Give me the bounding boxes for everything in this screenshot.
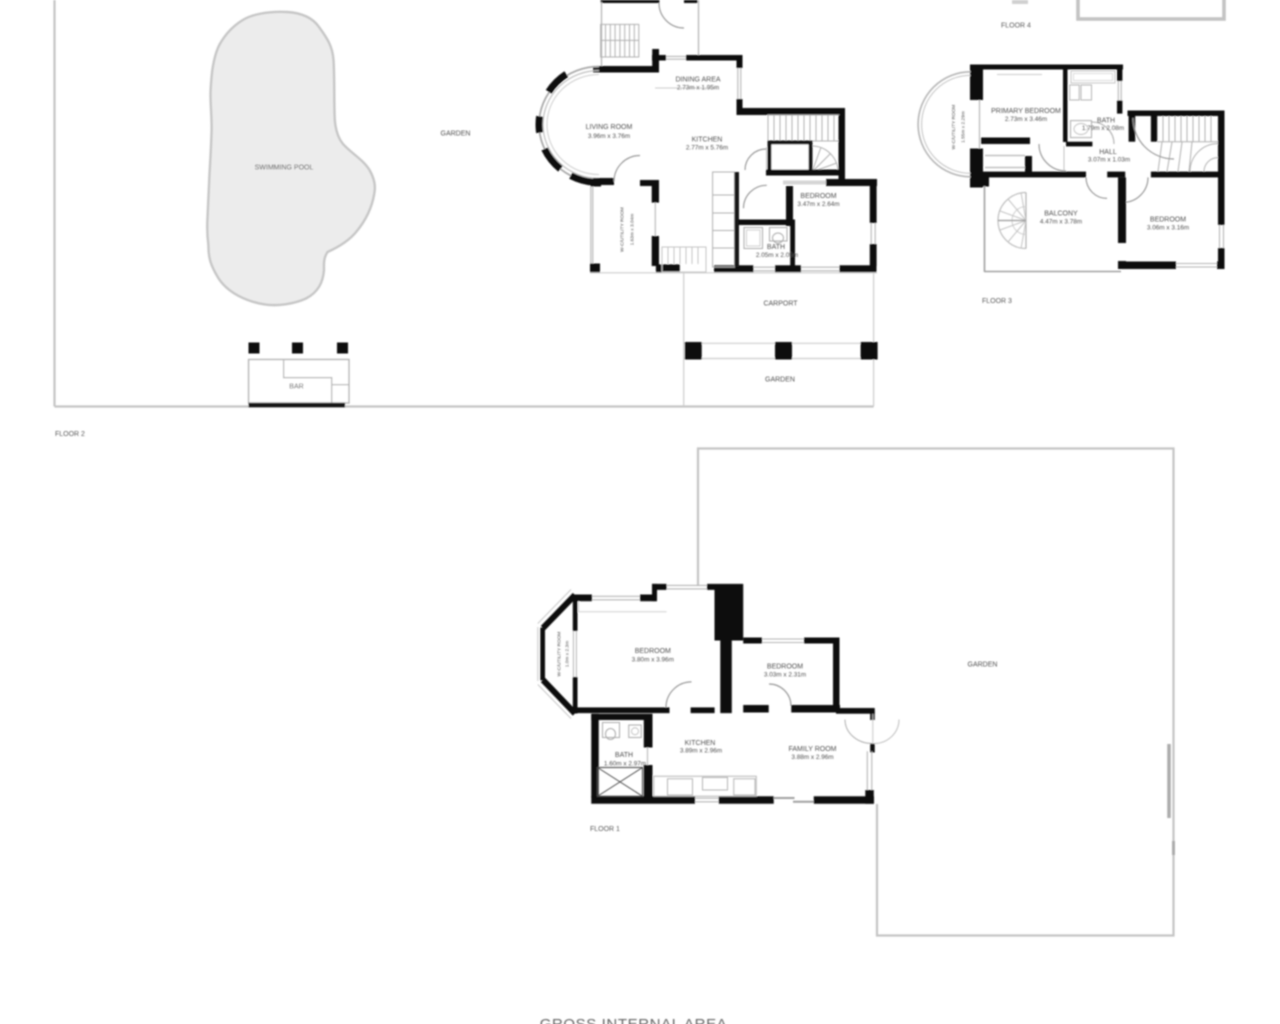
svg-text:W-C/UTILITY ROOM: W-C/UTILITY ROOM — [557, 632, 563, 677]
svg-text:FAMILY ROOM: FAMILY ROOM — [789, 746, 837, 753]
svg-text:SWIMMING POOL: SWIMMING POOL — [255, 165, 314, 172]
svg-text:1.55m x 2.29m: 1.55m x 2.29m — [961, 111, 967, 143]
svg-text:BATH: BATH — [767, 244, 785, 251]
svg-text:BATH: BATH — [615, 752, 633, 759]
svg-text:3.06m x 3.16m: 3.06m x 3.16m — [1147, 225, 1189, 232]
svg-text:FLOOR 1: FLOOR 1 — [590, 826, 620, 833]
svg-text:BEDROOM: BEDROOM — [800, 193, 836, 200]
svg-text:FLOOR 4: FLOOR 4 — [1001, 23, 1031, 30]
svg-text:3.07m x 1.03m: 3.07m x 1.03m — [1088, 157, 1130, 164]
svg-text:W-C/UTILITY ROOM: W-C/UTILITY ROOM — [620, 207, 626, 252]
svg-text:BEDROOM: BEDROOM — [767, 664, 803, 671]
svg-text:3.80m x 3.96m: 3.80m x 3.96m — [632, 656, 674, 663]
svg-text:3.47m x 2.64m: 3.47m x 2.64m — [797, 201, 839, 208]
svg-text:FLOOR 3: FLOOR 3 — [982, 298, 1012, 305]
svg-text:GARDEN: GARDEN — [441, 131, 471, 138]
svg-text:BATH: BATH — [1097, 118, 1115, 125]
svg-text:DINING AREA: DINING AREA — [675, 77, 720, 84]
svg-text:GARDEN: GARDEN — [968, 662, 998, 669]
svg-text:3.88m x 2.96m: 3.88m x 2.96m — [791, 754, 833, 761]
svg-text:CARPORT: CARPORT — [763, 301, 798, 308]
svg-text:HALL: HALL — [1099, 149, 1117, 156]
svg-text:PRIMARY BEDROOM: PRIMARY BEDROOM — [991, 108, 1061, 115]
svg-text:GROSS INTERNAL AREA: GROSS INTERNAL AREA — [540, 1016, 728, 1024]
svg-text:GARDEN: GARDEN — [765, 377, 795, 384]
svg-text:1.63m x 3.04m: 1.63m x 3.04m — [630, 214, 636, 246]
svg-text:1.60m x 2.97m: 1.60m x 2.97m — [604, 761, 646, 768]
svg-text:KITCHEN: KITCHEN — [685, 740, 716, 747]
svg-text:BEDROOM: BEDROOM — [1150, 217, 1186, 224]
svg-text:3.96m x 3.76m: 3.96m x 3.76m — [588, 133, 630, 140]
svg-text:BEDROOM: BEDROOM — [635, 648, 671, 655]
svg-text:2.73m x 3.46m: 2.73m x 3.46m — [1005, 116, 1047, 123]
svg-text:FLOOR 2: FLOOR 2 — [55, 431, 85, 438]
svg-text:LIVING ROOM: LIVING ROOM — [586, 124, 633, 131]
svg-text:4.47m x 3.78m: 4.47m x 3.78m — [1040, 219, 1082, 226]
svg-text:KITCHEN: KITCHEN — [692, 137, 723, 144]
svg-text:W-C/UTILITY ROOM: W-C/UTILITY ROOM — [951, 105, 957, 150]
svg-text:BAR: BAR — [289, 384, 303, 391]
svg-text:2.73m x 1.95m: 2.73m x 1.95m — [677, 85, 719, 92]
svg-text:3.03m x 2.31m: 3.03m x 2.31m — [764, 672, 806, 679]
svg-text:1.0m x 2.3m: 1.0m x 2.3m — [565, 641, 571, 667]
svg-text:1.79m x 2.08m: 1.79m x 2.08m — [1082, 125, 1124, 132]
svg-text:BALCONY: BALCONY — [1044, 211, 1078, 218]
svg-text:3.89m x 2.96m: 3.89m x 2.96m — [680, 748, 722, 755]
svg-text:2.05m x 2.05m: 2.05m x 2.05m — [756, 252, 798, 259]
svg-text:2.77m x 5.76m: 2.77m x 5.76m — [686, 145, 728, 152]
